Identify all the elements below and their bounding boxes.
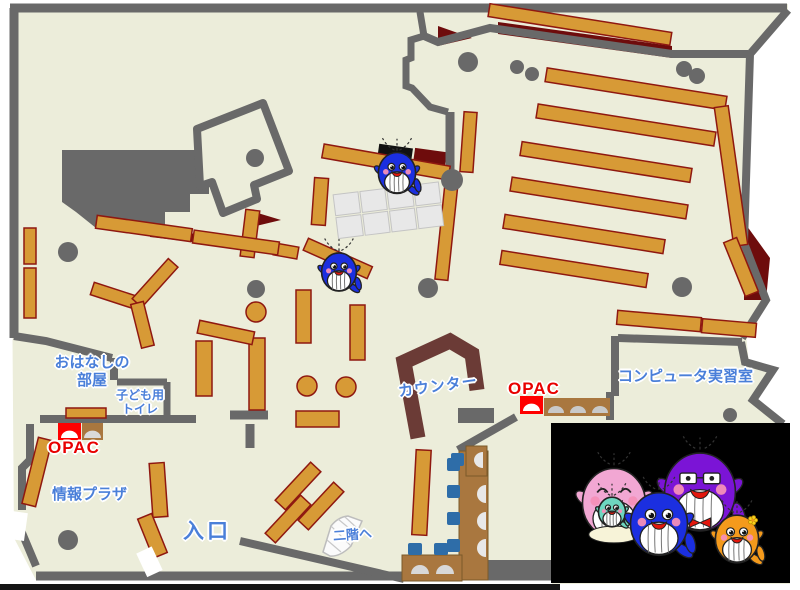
chair[interactable] bbox=[447, 539, 460, 552]
label-kids-toilet: 子ども用 トイレ bbox=[112, 388, 168, 417]
chair[interactable] bbox=[447, 485, 460, 498]
library-floor-map: おはなしの 部屋 子ども用 トイレ OPAC 情報プラザ 入口 カウンター OP… bbox=[0, 0, 800, 590]
counter-desk bbox=[458, 408, 494, 423]
label-opac-right: OPAC bbox=[508, 379, 560, 399]
chair[interactable] bbox=[451, 453, 464, 466]
label-computer-room: コンピュータ実習室 bbox=[618, 368, 753, 386]
chair[interactable] bbox=[447, 512, 460, 525]
label-to-second-floor: 二階へ bbox=[333, 526, 373, 544]
bottom-edge bbox=[0, 584, 560, 590]
chair[interactable] bbox=[434, 543, 448, 555]
label-story-room: おはなしの 部屋 bbox=[47, 354, 137, 390]
label-info-plaza: 情報プラザ bbox=[52, 486, 127, 504]
label-opac-left: OPAC bbox=[48, 438, 100, 458]
label-entrance: 入口 bbox=[183, 519, 231, 544]
chair[interactable] bbox=[408, 543, 422, 555]
